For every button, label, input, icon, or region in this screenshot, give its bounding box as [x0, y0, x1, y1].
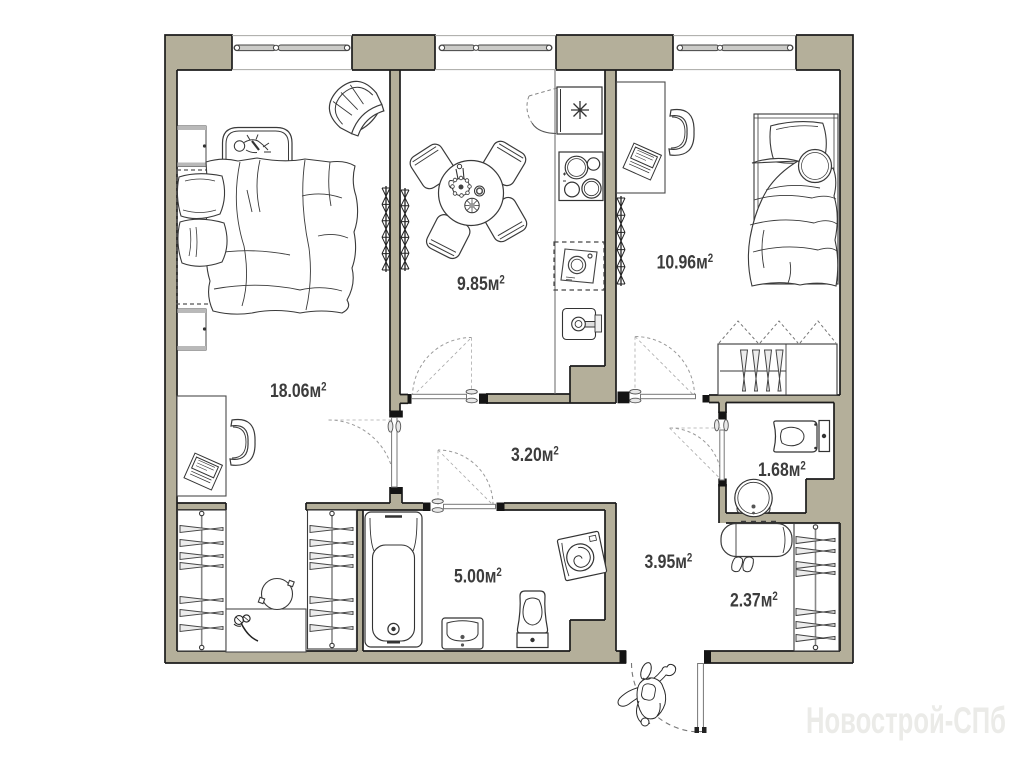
- svg-text:3.20м2: 3.20м2: [511, 443, 559, 465]
- svg-text:2.37м2: 2.37м2: [730, 589, 778, 611]
- svg-text:9.85м2: 9.85м2: [457, 272, 505, 294]
- svg-text:18.06м2: 18.06м2: [270, 379, 327, 401]
- svg-text:5.00м2: 5.00м2: [454, 565, 502, 587]
- svg-text:1.68м2: 1.68м2: [758, 458, 806, 480]
- svg-text:3.95м2: 3.95м2: [645, 550, 693, 572]
- svg-text:Новострой-СПб: Новострой-СПб: [806, 700, 1006, 741]
- svg-text:10.96м2: 10.96м2: [657, 251, 714, 273]
